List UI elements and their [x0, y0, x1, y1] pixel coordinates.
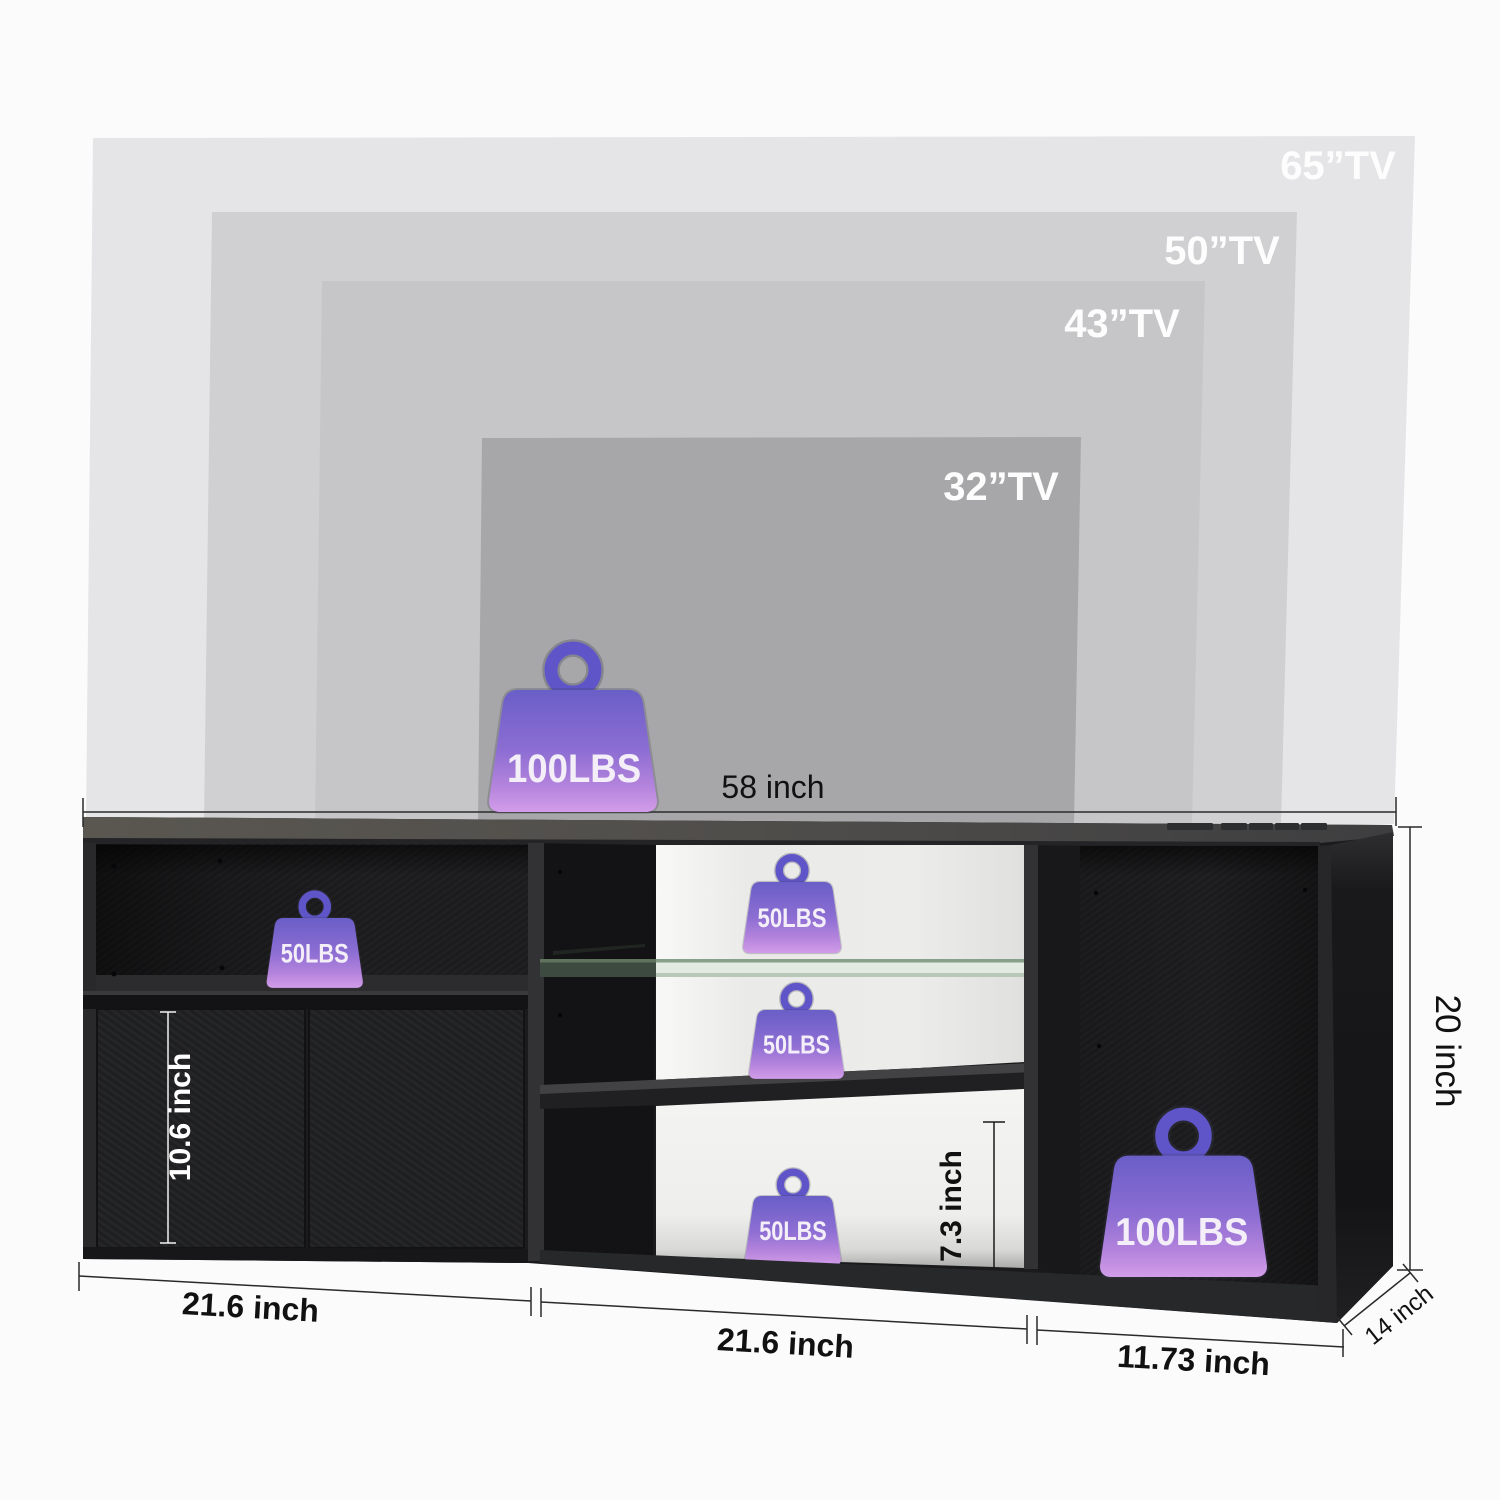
svg-text:58 inch: 58 inch — [721, 769, 824, 805]
svg-text:100LBS: 100LBS — [1115, 1211, 1248, 1254]
svg-text:21.6 inch: 21.6 inch — [716, 1321, 855, 1365]
svg-text:20 inch: 20 inch — [1428, 995, 1467, 1108]
svg-text:65”TV: 65”TV — [1280, 144, 1396, 188]
svg-text:10.6 inch: 10.6 inch — [164, 1053, 197, 1181]
svg-text:32”TV: 32”TV — [943, 465, 1059, 509]
svg-text:100LBS: 100LBS — [507, 747, 641, 791]
svg-text:50LBS: 50LBS — [281, 938, 349, 968]
svg-text:50LBS: 50LBS — [759, 1216, 827, 1246]
svg-text:21.6 inch: 21.6 inch — [181, 1285, 320, 1329]
svg-text:7.3 inch: 7.3 inch — [935, 1150, 968, 1262]
svg-text:50LBS: 50LBS — [758, 903, 827, 933]
svg-text:50LBS: 50LBS — [763, 1030, 830, 1060]
svg-text:50”TV: 50”TV — [1164, 229, 1280, 273]
svg-text:43”TV: 43”TV — [1064, 302, 1180, 346]
